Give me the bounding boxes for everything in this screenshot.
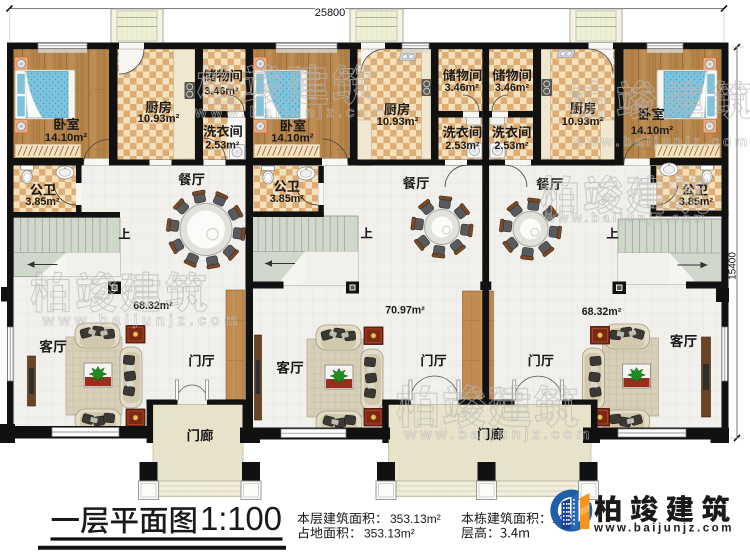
svg-text:70.97m²: 70.97m² (385, 305, 425, 317)
svg-text:14.10m²: 14.10m² (271, 133, 314, 145)
svg-text:353.13m²: 353.13m² (364, 527, 415, 541)
svg-text:3.46m²: 3.46m² (495, 82, 530, 94)
svg-text:1:100: 1:100 (200, 500, 282, 537)
svg-text:353.13m²: 353.13m² (390, 512, 441, 526)
svg-text:25800: 25800 (315, 7, 346, 19)
svg-text:2.53m²: 2.53m² (494, 140, 529, 152)
svg-text:2.53m²: 2.53m² (445, 140, 480, 152)
svg-text:3.85m²: 3.85m² (25, 196, 60, 208)
svg-text:3.85m²: 3.85m² (270, 193, 305, 205)
svg-text:10.93m²: 10.93m² (138, 113, 180, 125)
svg-text:3.46m²: 3.46m² (445, 82, 480, 94)
svg-text:10.93m²: 10.93m² (562, 116, 604, 128)
svg-text:15400: 15400 (728, 252, 739, 280)
svg-text:2.53m²: 2.53m² (205, 140, 240, 152)
svg-text:14.10m²: 14.10m² (45, 132, 88, 144)
svg-text:3.46m²: 3.46m² (204, 86, 239, 98)
svg-text:68.32m²: 68.32m² (582, 306, 622, 318)
